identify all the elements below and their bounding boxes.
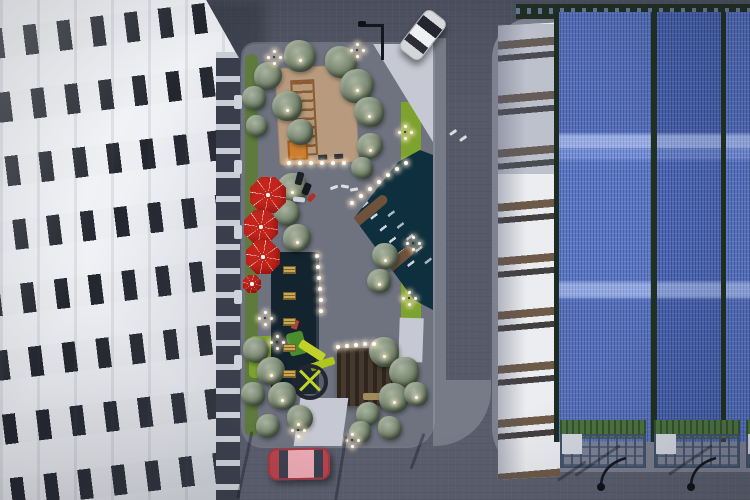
bollard-light-dot: [297, 423, 300, 426]
string-light-dot: [336, 345, 340, 349]
cafe-umbrella: [244, 210, 278, 244]
balcony-end: [234, 95, 242, 109]
bollard-light-dot: [408, 303, 411, 306]
bollard-light-dot: [356, 55, 359, 58]
umbrella-center: [261, 255, 265, 259]
tree: [241, 382, 265, 406]
road-mark: [341, 184, 349, 188]
road-mark: [330, 185, 338, 190]
tree: [284, 40, 316, 72]
bollard-light-dot: [412, 236, 415, 239]
picnic-bench: [283, 318, 296, 326]
tree-light-dot: [291, 191, 294, 194]
tree-light-dot: [270, 374, 273, 377]
bollard-light-dot: [410, 131, 413, 134]
road-mark: [459, 135, 467, 142]
bollard-light-dot: [350, 49, 353, 52]
tree-light-dot: [281, 399, 284, 402]
road-mark: [449, 129, 457, 136]
road-mark: [350, 187, 358, 191]
bollard-light-dot: [276, 335, 279, 338]
bollard-light-dot: [398, 131, 401, 134]
picnic-bench: [283, 370, 296, 378]
tree: [242, 86, 266, 110]
tree: [287, 405, 313, 431]
bollard-light-dot: [267, 56, 270, 59]
string-light-dot: [316, 265, 320, 269]
tree: [256, 414, 280, 438]
string-light-dot: [372, 342, 376, 346]
lamp-shadow: [410, 433, 426, 470]
string-light-dot: [395, 167, 399, 171]
bollard-light-dot: [404, 125, 407, 128]
tree-light-dot: [356, 89, 359, 92]
tree: [272, 91, 302, 121]
string-light-dot: [354, 343, 358, 347]
lamp-shadow: [236, 431, 253, 498]
tree: [378, 416, 402, 440]
bollard-light-dot: [362, 49, 365, 52]
lamp-cluster-pole: [351, 439, 353, 441]
string-light-dot: [319, 309, 323, 313]
tree-light-dot: [299, 59, 302, 62]
bollard-light-dot: [279, 56, 282, 59]
string-light-dot: [318, 287, 322, 291]
string-light-dot: [363, 342, 367, 346]
bollard-light-dot: [357, 439, 360, 442]
balcony-end: [234, 225, 242, 239]
string-light-dot: [298, 161, 302, 165]
tree-light-dot: [369, 149, 372, 152]
tree-light-dot: [286, 109, 289, 112]
cafe-umbrella: [246, 240, 280, 274]
bollard-light-dot: [414, 297, 417, 300]
bollard-light-dot: [356, 43, 359, 46]
bollard-light-dot: [264, 311, 267, 314]
bollard-light-dot: [404, 137, 407, 140]
tree-light-dot: [383, 355, 386, 358]
bollard-light-dot: [264, 323, 267, 326]
bollard-light-dot: [273, 62, 276, 65]
tree: [372, 243, 398, 269]
bollard-light-dot: [402, 297, 405, 300]
balcony-end: [234, 160, 242, 174]
scene-details-layer: [0, 0, 750, 500]
tree: [404, 382, 428, 406]
tree: [257, 357, 285, 385]
string-light-dot: [287, 161, 291, 165]
lamp-cluster-pole: [404, 131, 406, 133]
picnic-bench: [283, 292, 296, 300]
string-light-dot: [315, 254, 319, 258]
picnic-bench: [283, 266, 296, 274]
bollard-light-dot: [270, 317, 273, 320]
string-light-dot: [377, 180, 381, 184]
tree: [287, 119, 313, 145]
lamp-shadow: [334, 435, 348, 500]
string-light-dot: [404, 161, 408, 165]
string-light-dot: [359, 194, 363, 198]
lamp-shadow: [574, 444, 620, 477]
string-light-dot: [331, 161, 335, 165]
string-light-dot: [345, 344, 349, 348]
bollard-light-dot: [406, 242, 409, 245]
bollard-light-dot: [297, 435, 300, 438]
umbrella-center: [250, 282, 254, 286]
lamp-cluster-pole: [412, 242, 414, 244]
lamp-cluster-pole: [264, 317, 266, 319]
balcony-end: [234, 355, 242, 369]
tree-light-dot: [415, 396, 418, 399]
lamp-shadow: [668, 444, 713, 476]
tree: [351, 157, 373, 179]
bollard-light-dot: [412, 248, 415, 251]
tree-light-dot: [378, 283, 381, 286]
string-light-dot: [320, 161, 324, 165]
lamp-cluster-pole: [356, 49, 358, 51]
lamp-cluster-pole: [408, 297, 410, 299]
tree: [354, 97, 384, 127]
parked-scooter: [293, 196, 305, 202]
string-light-dot: [350, 201, 354, 205]
bollard-light-dot: [351, 433, 354, 436]
cafe-umbrella: [243, 275, 261, 293]
string-light-dot: [309, 161, 313, 165]
lamp-cluster-pole: [273, 56, 275, 58]
bollard-light-dot: [303, 429, 306, 432]
tree-light-dot: [368, 115, 371, 118]
bollard-light-dot: [276, 347, 279, 350]
string-light-dot: [342, 161, 346, 165]
tree: [357, 133, 383, 159]
bollard-light-dot: [291, 429, 294, 432]
umbrella-center: [259, 225, 263, 229]
string-light-dot: [317, 276, 321, 280]
tree-light-dot: [296, 241, 299, 244]
lamp-cluster-pole: [276, 341, 278, 343]
tree: [283, 224, 311, 252]
tree-light-dot: [393, 401, 396, 404]
string-light-dot: [368, 187, 372, 191]
bollard-light-dot: [273, 50, 276, 53]
string-light-dot: [386, 173, 390, 177]
tree: [246, 115, 268, 137]
string-light-dot: [319, 298, 323, 302]
bollard-light-dot: [270, 341, 273, 344]
lamp-cluster-pole: [297, 429, 299, 431]
bollard-light-dot: [408, 291, 411, 294]
aerial-courtyard-scene: [0, 0, 750, 500]
bollard-light-dot: [418, 242, 421, 245]
tree-light-dot: [384, 259, 387, 262]
bollard-light-dot: [258, 317, 261, 320]
balcony-end: [234, 290, 242, 304]
umbrella-center: [266, 193, 270, 197]
bollard-light-dot: [351, 445, 354, 448]
picnic-bench: [283, 344, 296, 352]
tree: [367, 269, 391, 293]
